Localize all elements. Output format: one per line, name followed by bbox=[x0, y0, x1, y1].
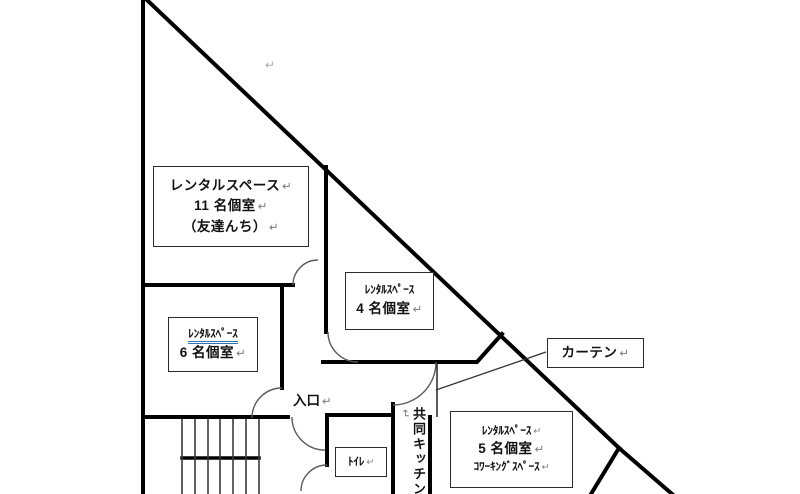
room11-name: レンタルスペース bbox=[170, 178, 280, 193]
return-mark-icon: ↵ bbox=[282, 181, 292, 193]
room11-door-arc bbox=[293, 260, 318, 285]
return-mark-icon: ↵ bbox=[535, 444, 545, 456]
room4-label-box: ﾚﾝﾀﾙｽﾍﾟｰｽ 4 名個室↵ bbox=[345, 272, 434, 330]
toilet-label-box: ﾄｲﾚ↵ bbox=[335, 447, 387, 477]
room6-name: ﾚﾝﾀﾙｽﾍﾟｰｽ bbox=[188, 328, 238, 344]
room5-capacity: 5 名個室 bbox=[478, 441, 532, 456]
room11-capacity: 11 名個室 bbox=[194, 198, 256, 213]
toilet-label: ﾄｲﾚ bbox=[348, 456, 365, 468]
room6-door-arc bbox=[252, 388, 282, 418]
return-mark-icon: ↵ bbox=[366, 457, 374, 467]
return-mark-icon: ↵ bbox=[542, 462, 550, 472]
return-mark-icon: ↵ bbox=[619, 348, 629, 360]
return-mark-icon: ↵ bbox=[399, 409, 411, 420]
room11-nickname: （友達んち） bbox=[183, 219, 267, 234]
kitchen-door-arc bbox=[393, 362, 436, 405]
room4-door-arc bbox=[328, 332, 358, 362]
return-mark-icon: ↵ bbox=[236, 348, 246, 360]
return-mark-icon: ↵ bbox=[413, 304, 423, 316]
corridor-top-wall bbox=[323, 334, 502, 362]
room5-name: ﾚﾝﾀﾙｽﾍﾟｰｽ bbox=[482, 425, 532, 437]
return-mark-icon: ↵ bbox=[258, 201, 268, 213]
floor-plan-page: レンタルスペース↵ 11 名個室↵ （友達んち）↵ ﾚﾝﾀﾙｽﾍﾟｰｽ 4 名個… bbox=[0, 0, 800, 494]
kitchen-label: 共同キッチン↵ bbox=[399, 407, 425, 494]
entrance-door-arc bbox=[292, 417, 325, 450]
entrance-label: 入口↵ bbox=[293, 389, 332, 409]
return-mark-icon: ↵ bbox=[269, 222, 279, 234]
room4-capacity: 4 名個室 bbox=[356, 301, 410, 316]
room4-name: ﾚﾝﾀﾙｽﾍﾟｰｽ bbox=[365, 284, 415, 296]
room5-coworking: ｺﾜｰｷﾝｸﾞｽﾍﾟｰｽ bbox=[474, 461, 540, 473]
room6-capacity: 6 名個室 bbox=[180, 345, 234, 360]
room6-label-box: ﾚﾝﾀﾙｽﾍﾟｰｽ 6 名個室↵ bbox=[168, 317, 258, 372]
paragraph-mark-icon: ↵ bbox=[265, 58, 275, 72]
curtain-label: カーテン bbox=[561, 345, 617, 360]
curtain-leader-line bbox=[436, 352, 546, 390]
curtain-label-box: カーテン↵ bbox=[547, 338, 644, 368]
return-mark-icon: ↵ bbox=[322, 396, 332, 408]
room5-label-box: ﾚﾝﾀﾙｽﾍﾟｰｽ↵ 5 名個室↵ ｺﾜｰｷﾝｸﾞｽﾍﾟｰｽ↵ bbox=[450, 411, 573, 488]
toilet-door-arc bbox=[301, 465, 327, 491]
room11-label-box: レンタルスペース↵ 11 名個室↵ （友達んち）↵ bbox=[153, 166, 309, 247]
return-mark-icon: ↵ bbox=[533, 426, 541, 436]
diagonal-branch-wall bbox=[591, 448, 619, 494]
